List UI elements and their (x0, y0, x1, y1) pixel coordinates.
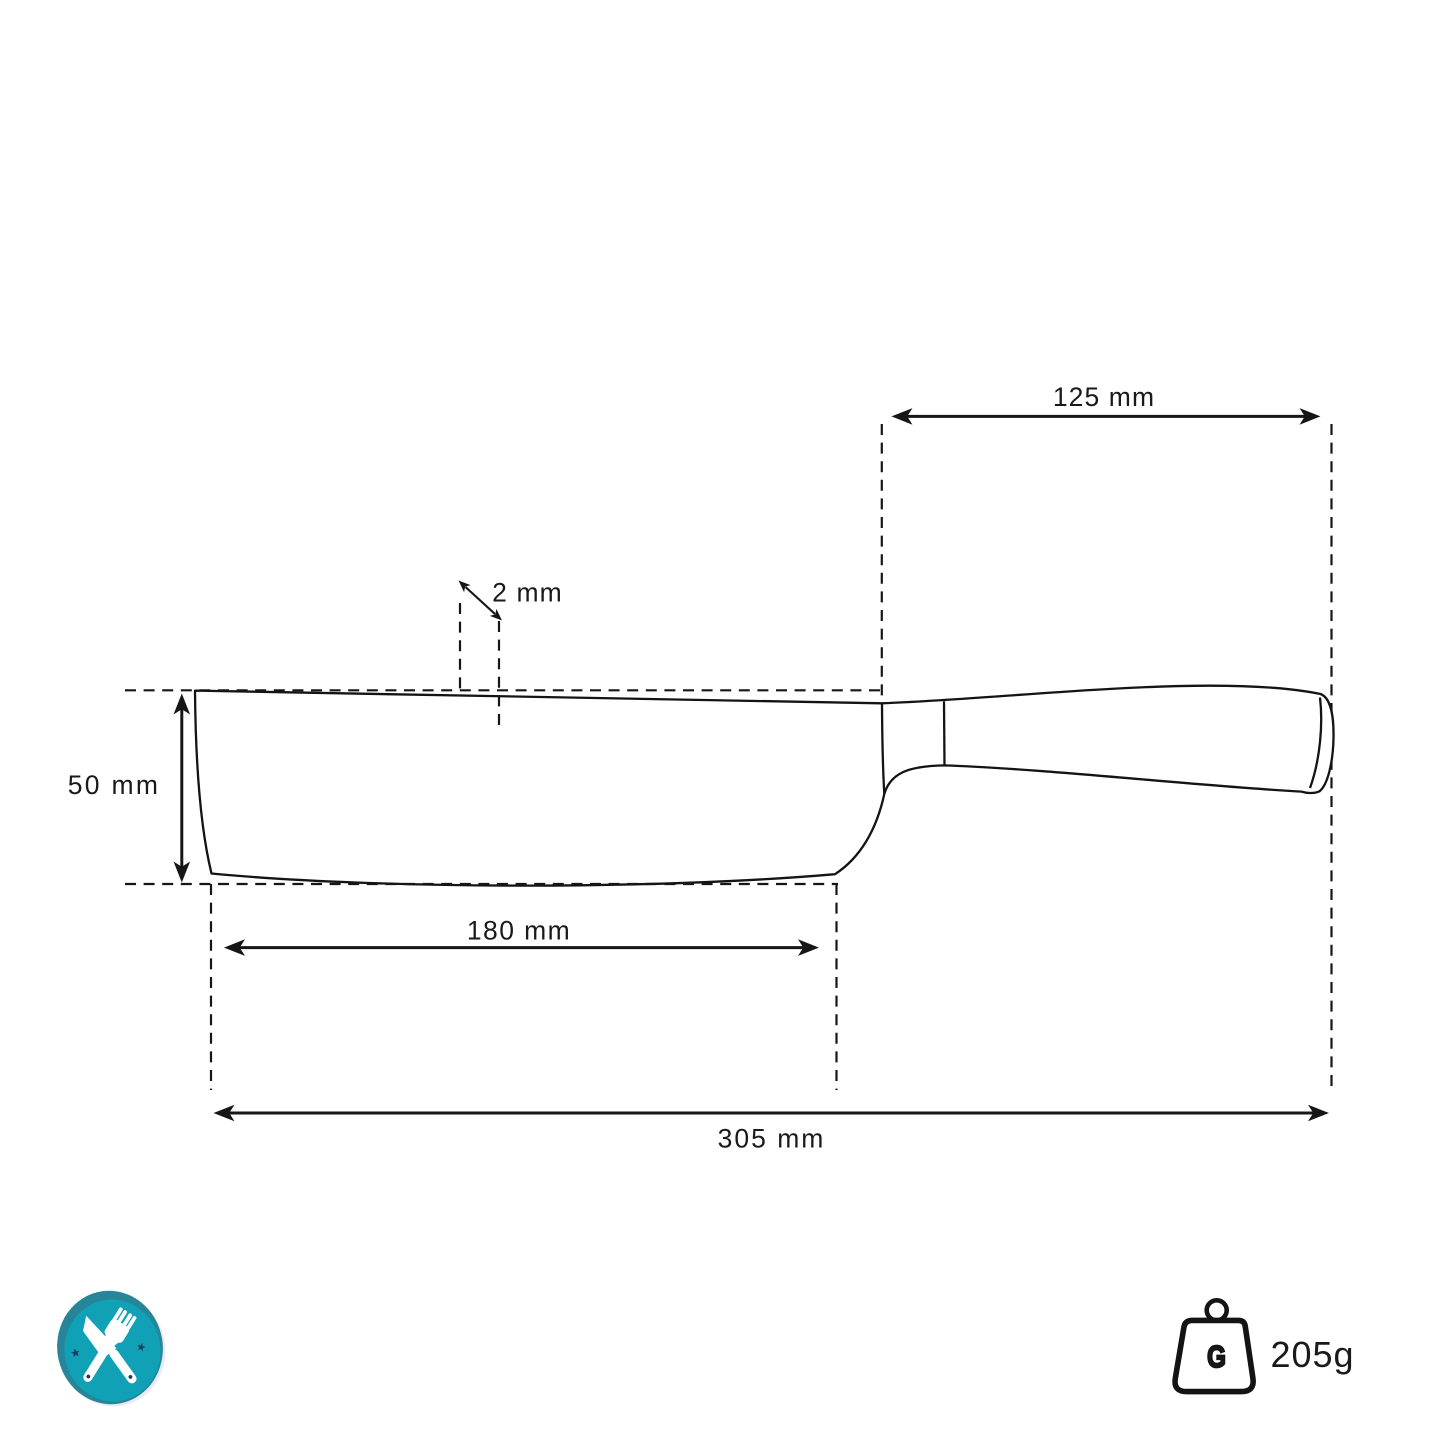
svg-text:205g: 205g (1270, 1334, 1354, 1375)
svg-text:50 mm: 50 mm (68, 770, 161, 800)
svg-text:125 mm: 125 mm (1053, 382, 1155, 412)
svg-text:305 mm: 305 mm (718, 1124, 826, 1154)
svg-text:G: G (1207, 1339, 1226, 1374)
svg-text:2 mm: 2 mm (492, 578, 563, 608)
svg-text:180 mm: 180 mm (467, 916, 571, 946)
